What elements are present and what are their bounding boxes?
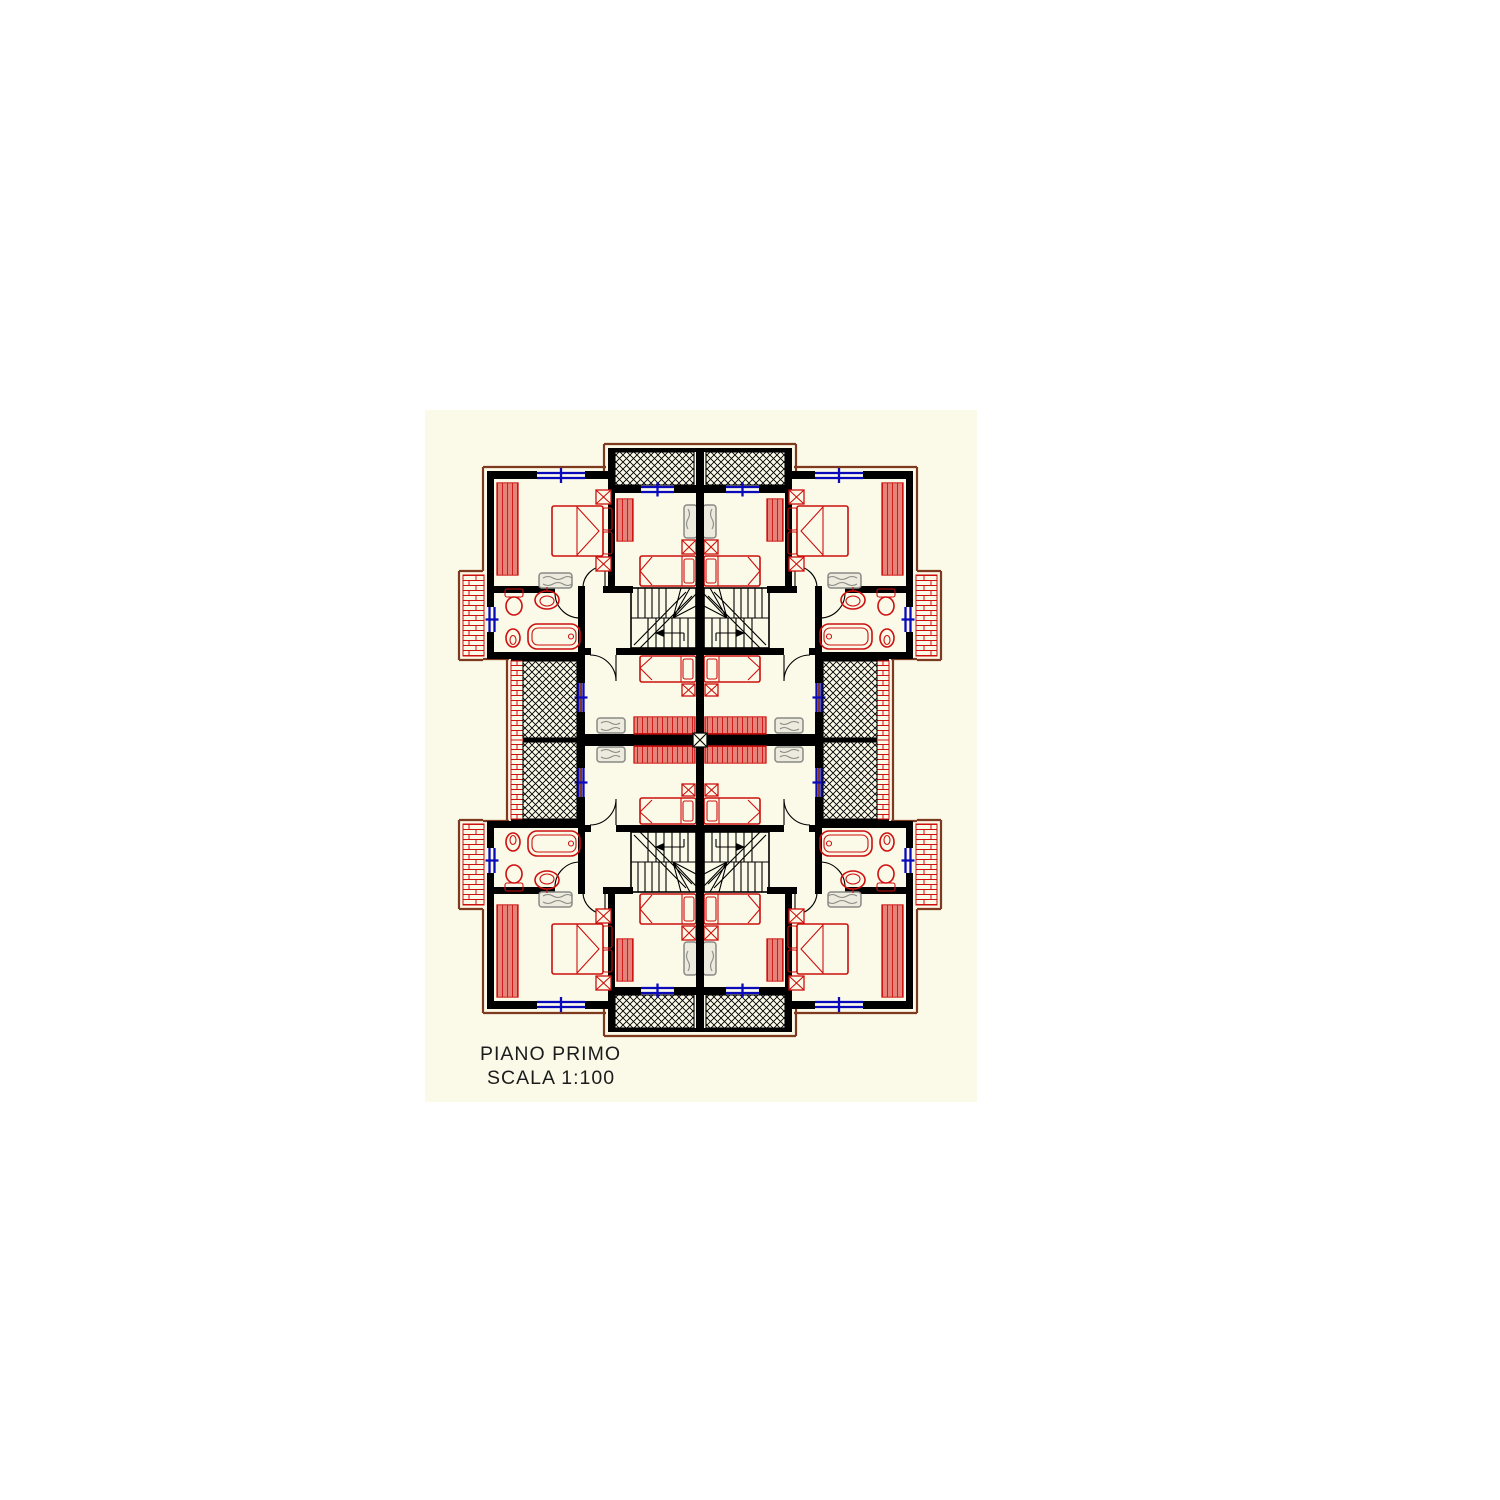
floor-plan-svg: PIANO PRIMO SCALA 1:100: [0, 0, 1500, 1500]
floor-title: PIANO PRIMO: [480, 1043, 621, 1065]
drawing-sheet: PIANO PRIMO SCALA 1:100: [0, 0, 1500, 1500]
scale-label: SCALA 1:100: [487, 1067, 615, 1089]
center-junction-marker: [693, 733, 707, 747]
